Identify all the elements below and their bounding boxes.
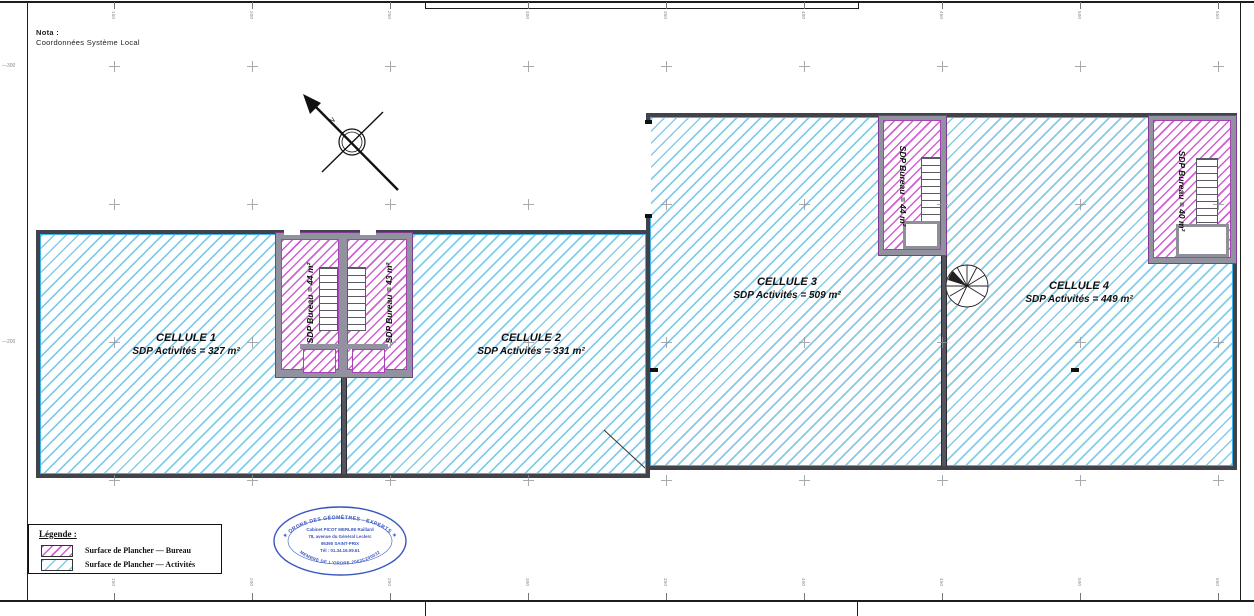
nota-block: Nota : Coordonnées Système Local <box>36 28 140 48</box>
stamp-line-2: 78, avenue du Général Leclerc <box>308 534 372 539</box>
grid-cross <box>523 199 534 210</box>
bureau2-label: SDP Bureau = 43 m² <box>384 263 394 344</box>
grid-cross <box>385 61 396 72</box>
grid-tick-label-top: 550 <box>1215 11 1220 19</box>
grid-tick-top <box>1218 2 1219 9</box>
grid-tick-top <box>114 2 115 9</box>
grid-tick-label-bottom: 400 <box>801 578 806 586</box>
grid-tick-label-left: —200 <box>2 339 15 345</box>
legend-label-activites: Surface de Plancher — Activités <box>85 560 195 569</box>
surveyor-stamp: ✶ ORDRE DES GÉOMÈTRES - EXPERTS ✶ MEMBRE… <box>270 500 410 592</box>
grid-tick-label-top: 500 <box>1077 11 1082 19</box>
grid-tick-label-top: 150 <box>111 11 116 19</box>
grid-tick-label-bottom: 350 <box>663 578 668 586</box>
grid-tick-bottom <box>942 593 943 600</box>
grid-cross <box>937 61 948 72</box>
wall-stub <box>650 368 658 372</box>
cell1-name: CELLULE 1 <box>76 332 296 345</box>
cell2-label: CELLULE 2 SDP Activités = 331 m² <box>421 332 641 358</box>
grid-cross <box>109 61 120 72</box>
grid-cross <box>661 61 672 72</box>
grid-tick-label-top: 250 <box>387 11 392 19</box>
plan-sheet: Nota : Coordonnées Système Local CELLULE… <box>0 0 1254 616</box>
cell3-label: CELLULE 3 SDP Activités = 509 m² <box>677 276 897 302</box>
bureau-closet-cell1 <box>303 349 336 373</box>
grid-cross <box>109 199 120 210</box>
frame-left-line <box>27 2 28 600</box>
frame-bottom-divider-right <box>857 600 858 616</box>
bureau1-label: SDP Bureau = 44 m² <box>305 263 315 344</box>
grid-tick-label-left: —300 <box>2 63 15 69</box>
grid-cross <box>1213 475 1224 486</box>
stamp-line-3: 95390 SAINT-PRIX <box>321 541 359 546</box>
grid-tick-bottom <box>1080 593 1081 600</box>
grid-tick-label-bottom: 150 <box>111 578 116 586</box>
frame-bottom-line <box>0 600 1254 602</box>
grid-cross <box>1075 475 1086 486</box>
grid-cross <box>937 475 948 486</box>
grid-cross <box>661 475 672 486</box>
grid-tick-label-top: 450 <box>939 11 944 19</box>
grid-tick-bottom <box>252 593 253 600</box>
grid-tick-label-top: 200 <box>249 11 254 19</box>
grid-tick-top <box>390 2 391 9</box>
grid-tick-bottom <box>666 593 667 600</box>
cell1-label: CELLULE 1 SDP Activités = 327 m² <box>76 332 296 358</box>
legend-swatch-activites <box>41 559 73 571</box>
frame-right-line <box>1240 2 1241 600</box>
door-opening-bureau2 <box>360 230 376 235</box>
cell3-name: CELLULE 3 <box>677 276 897 289</box>
grid-cross <box>1075 61 1086 72</box>
grid-tick-top <box>1080 2 1081 9</box>
cell3-area: SDP Activités = 509 m² <box>677 289 897 302</box>
wall-stub <box>1071 368 1079 372</box>
cell2-name: CELLULE 2 <box>421 332 641 345</box>
grid-cross <box>385 199 396 210</box>
stamp-line-4: Tél : 01.34.16.09.61 <box>320 548 360 553</box>
grid-tick-bottom <box>114 593 115 600</box>
cell4-name: CELLULE 4 <box>969 280 1189 293</box>
grid-cross <box>799 475 810 486</box>
cell1-area: SDP Activités = 327 m² <box>76 345 296 358</box>
grid-tick-label-bottom: 500 <box>1077 578 1082 586</box>
nota-line: Coordonnées Système Local <box>36 38 140 48</box>
door-opening-right-building <box>646 124 651 214</box>
door-opening-bureau1 <box>284 230 300 235</box>
grid-cross <box>247 199 258 210</box>
legend-box: Légende : Surface de Plancher — Bureau S… <box>28 524 222 574</box>
grid-tick-bottom <box>528 593 529 600</box>
grid-tick-label-bottom: 200 <box>249 578 254 586</box>
grid-cross <box>1213 61 1224 72</box>
grid-tick-bottom <box>1218 593 1219 600</box>
wall-divider-cell1-cell2 <box>341 373 347 474</box>
grid-tick-label-bottom: 450 <box>939 578 944 586</box>
grid-tick-label-top: 350 <box>663 11 668 19</box>
stamp-line-1: Cabinet PICOT MERLINI Raillard <box>306 527 374 532</box>
legend-label-bureau: Surface de Plancher — Bureau <box>85 546 191 555</box>
legend-swatch-bureau <box>41 545 73 557</box>
north-arrow-icon: N <box>303 94 398 190</box>
grid-tick-top <box>252 2 253 9</box>
staircase-cell1 <box>319 267 338 331</box>
wall-cap <box>645 214 652 218</box>
grid-tick-bottom <box>804 593 805 600</box>
bureau-closet-cell3 <box>903 221 940 249</box>
grid-tick-label-bottom: 300 <box>525 578 530 586</box>
bureau4-label: SDP Bureau = 40 m² <box>1177 151 1187 232</box>
bureau3-label: SDP Bureau = 44 m² <box>898 146 908 227</box>
grid-tick-label-top: 400 <box>801 11 806 19</box>
grid-tick-label-top: 300 <box>525 11 530 19</box>
frame-bottom-divider-left <box>425 600 426 616</box>
grid-cross <box>799 61 810 72</box>
grid-cross <box>523 61 534 72</box>
cell4-label: CELLULE 4 SDP Activités = 449 m² <box>969 280 1189 306</box>
grid-tick-label-bottom: 550 <box>1215 578 1220 586</box>
grid-tick-bottom <box>390 593 391 600</box>
staircase-cell2 <box>347 267 366 331</box>
cell4-area: SDP Activités = 449 m² <box>969 293 1189 306</box>
grid-cross <box>247 61 258 72</box>
legend-title: Légende : <box>39 529 77 539</box>
frame-top-tab <box>425 1 859 9</box>
bureau-closet-cell2 <box>352 349 385 373</box>
wall-cap <box>645 120 652 124</box>
nota-title: Nota : <box>36 28 140 38</box>
grid-tick-top <box>942 2 943 9</box>
north-label: N <box>328 116 337 125</box>
cell2-area: SDP Activités = 331 m² <box>421 345 641 358</box>
